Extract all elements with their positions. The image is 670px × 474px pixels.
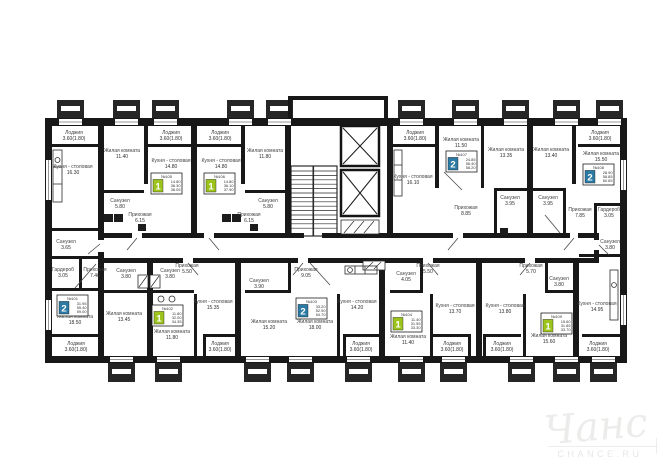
room-label: Лоджия3.60(1.80) — [404, 130, 427, 142]
room-area: 3.60(1.80) — [160, 136, 183, 142]
room-label: Лоджия3.60(1.80) — [589, 130, 612, 142]
room-area: 13.35 — [500, 153, 513, 159]
room-area: 4.05 — [401, 277, 411, 283]
room-label: Жилая комната15.60 — [531, 333, 567, 345]
svg-text:2: 2 — [587, 173, 592, 184]
room-area: 15.35 — [207, 305, 220, 311]
room-label: Жилая комната13.35 — [488, 147, 524, 159]
room-area: 3.60(1.80) — [209, 136, 232, 142]
room-area: 16.10 — [407, 180, 420, 186]
room-label: Кухня - столовая16.30 — [53, 164, 92, 176]
room-label: Жилая комната11.40 — [104, 148, 140, 160]
room-label: Кухня - столовая15.35 — [193, 299, 232, 311]
room-area: 13.40 — [545, 153, 558, 159]
room-area: 15.50 — [595, 157, 608, 163]
room-area: 3.60(1.80) — [404, 136, 427, 142]
apartment-badge[interactable]: №109 1 15.6031.8533.70 — [541, 313, 572, 334]
room-label: Жилая комната11.80 — [247, 148, 283, 160]
room-label: Жилая комната11.40 — [390, 334, 426, 346]
room-area: 11.80 — [166, 335, 178, 341]
apartment-badge[interactable]: №107 2 24.8556.4058.20 — [446, 151, 477, 172]
room-area: 18.00 — [309, 325, 322, 331]
room-area: 6.15 — [244, 218, 254, 224]
room-label: Санузел3.90 — [249, 278, 269, 290]
svg-text:2: 2 — [300, 307, 305, 318]
room-area: 3.05 — [604, 213, 614, 219]
stove-icon — [158, 296, 175, 302]
room-label: Санузел3.95 — [500, 195, 520, 207]
room-area: 3.60(1.80) — [63, 136, 86, 142]
room-label: Гардероб3.05 — [598, 207, 620, 219]
room-label: Жилая комната18.00 — [297, 319, 333, 331]
room-label: Жилая комната15.20 — [251, 319, 287, 331]
room-label: Лоджия3.60(1.80) — [65, 341, 88, 353]
room-area: 3.60(1.80) — [589, 136, 612, 142]
room-area: 14.20 — [351, 305, 364, 311]
room-label: Санузел3.80 — [160, 268, 180, 280]
balcony-stubs-top — [57, 100, 623, 120]
room-area: 5.80 — [115, 204, 125, 210]
room-label: Санузел3.80 — [116, 268, 136, 280]
svg-text:59.00: 59.00 — [77, 309, 88, 314]
walls — [45, 96, 627, 363]
staircase-icon — [291, 166, 337, 236]
room-label: Санузел3.65 — [56, 239, 76, 251]
room-area: 13.45 — [118, 317, 131, 323]
floor-plan-page: Лоджия3.60(1.80) Кухня - столовая16.30 Ж… — [0, 0, 670, 474]
room-area: 3.65 — [61, 245, 71, 251]
room-label: Кухня - столовая13.80 — [485, 303, 524, 315]
room-area: 11.40 — [116, 154, 128, 160]
apartment-badge[interactable]: №106 1 14.8036.1037.90 — [204, 173, 235, 194]
room-area: 16.30 — [67, 170, 80, 176]
svg-text:38.05: 38.05 — [171, 187, 181, 192]
room-area: 3.60(1.80) — [209, 347, 232, 353]
room-area: 13.80 — [499, 309, 512, 315]
room-area: 3.60(1.80) — [65, 347, 88, 353]
room-label: Жилая комната13.40 — [533, 147, 569, 159]
room-label: Лоджия3.60(1.80) — [491, 341, 514, 353]
watermark: Чанс CHANCE.RU — [542, 400, 658, 459]
room-area: 11.80 — [259, 154, 271, 160]
elevator-icon — [341, 126, 379, 166]
room-label: Лоджия3.60(1.80) — [209, 130, 232, 142]
svg-text:60.65: 60.65 — [603, 178, 613, 183]
svg-text:1: 1 — [155, 182, 161, 193]
apartment-badge[interactable]: №102 1 11.8032.0034.35 — [152, 305, 183, 326]
kitchen-counter — [53, 150, 62, 202]
room-label: Лоджия3.60(1.80) — [441, 341, 464, 353]
svg-text:1: 1 — [208, 182, 214, 193]
room-area: 7.40 — [90, 273, 100, 279]
room-label: Лоджия3.60(1.80) — [587, 341, 610, 353]
room-area: 3.80 — [554, 282, 564, 288]
kitchen-counter — [394, 150, 402, 196]
room-label: Прихожая8.85 — [454, 205, 477, 217]
apartment-badge[interactable]: №103 2 33.2052.9054.70 — [296, 298, 327, 319]
apartment-badge[interactable]: №104 1 11.4031.5533.30 — [391, 311, 422, 332]
room-area: 3.90 — [254, 284, 264, 290]
room-area: 5.80 — [263, 204, 273, 210]
room-area: 3.95 — [505, 201, 515, 207]
room-area: 15.60 — [543, 339, 556, 345]
room-area: 15.20 — [263, 325, 276, 331]
elevator-icon — [341, 170, 379, 216]
apartment-badge[interactable]: №101 2 31.9555.4059.00 — [57, 295, 88, 316]
floor-plan: Лоджия3.60(1.80) Кухня - столовая16.30 Ж… — [0, 0, 670, 474]
room-area: 14.95 — [591, 307, 604, 313]
room-label: Лоджия3.60(1.80) — [209, 341, 232, 353]
room-label: Прихожая7.85 — [568, 207, 591, 219]
room-label: Гардероб3.05 — [52, 267, 74, 279]
room-label: Прихожая9.05 — [294, 267, 317, 279]
room-label: Лоджия3.60(1.80) — [160, 130, 183, 142]
room-area: 11.50 — [455, 143, 467, 149]
room-label: Санузел5.80 — [110, 198, 130, 210]
room-label: Кухня - столовая13.70 — [435, 303, 474, 315]
room-area: 5.70 — [526, 269, 536, 275]
svg-text:1: 1 — [395, 320, 401, 331]
room-label: Жилая комната13.45 — [106, 311, 142, 323]
room-area: 6.15 — [135, 218, 145, 224]
svg-text:37.90: 37.90 — [224, 187, 235, 192]
room-area: 3.80 — [605, 245, 615, 251]
room-area: 13.70 — [449, 309, 462, 315]
room-label: Лоджия3.60(1.80) — [350, 341, 373, 353]
svg-text:34.35: 34.35 — [172, 319, 182, 324]
room-label: Кухня - столовая14.80 — [151, 158, 190, 170]
room-area: 9.05 — [301, 273, 311, 279]
apartment-badge[interactable]: №105 1 14.8036.3038.05 — [151, 173, 182, 194]
svg-text:2: 2 — [61, 304, 66, 315]
room-label: Санузел3.80 — [549, 276, 569, 288]
svg-text:1: 1 — [545, 322, 551, 333]
room-label: Санузел3.95 — [538, 195, 558, 207]
room-label: Санузел5.80 — [258, 198, 278, 210]
room-area: 3.60(1.80) — [491, 347, 514, 353]
room-area: 3.05 — [58, 273, 68, 279]
room-area: 8.85 — [461, 211, 471, 217]
room-label: Кухня - столовая14.80 — [201, 158, 240, 170]
room-area: 3.60(1.80) — [587, 347, 610, 353]
room-label: Лоджия3.60(1.80) — [63, 130, 86, 142]
kitchen-counter — [610, 270, 618, 320]
svg-text:58.20: 58.20 — [466, 165, 477, 170]
room-area: 14.80 — [215, 164, 228, 170]
room-area: 3.80 — [165, 274, 175, 280]
room-label: Санузел4.05 — [396, 271, 416, 283]
room-labels: Лоджия3.60(1.80) Кухня - столовая16.30 Ж… — [52, 130, 620, 353]
svg-text:2: 2 — [450, 160, 455, 171]
room-area: 3.80 — [121, 274, 131, 280]
room-area: 3.60(1.80) — [350, 347, 373, 353]
windows — [46, 119, 626, 362]
apartment-badge[interactable]: №108 2 28.9058.8560.65 — [583, 164, 614, 185]
room-label: Жилая комната11.80 — [154, 329, 190, 341]
building-core — [291, 126, 379, 236]
room-label: Жилая комната15.50 — [583, 151, 619, 163]
room-area: 3.60(1.80) — [441, 347, 464, 353]
room-label: Прихожая6.15 — [128, 212, 151, 224]
door-openings — [98, 240, 599, 252]
svg-text:54.70: 54.70 — [316, 312, 327, 317]
room-area: 5.50 — [182, 269, 192, 275]
room-label: Жилая комната11.50 — [443, 137, 479, 149]
room-label: Кухня - столовая14.20 — [337, 299, 376, 311]
room-area: 7.85 — [575, 213, 585, 219]
svg-text:33.70: 33.70 — [561, 327, 572, 332]
room-area: 11.40 — [402, 340, 414, 346]
room-area: 3.95 — [543, 201, 553, 207]
room-label: Прихожая5.70 — [519, 263, 542, 275]
room-area: 14.80 — [165, 164, 178, 170]
watermark-caption: CHANCE.RU — [557, 449, 642, 459]
room-area: 5.50 — [423, 269, 433, 275]
vent-shaft — [341, 220, 379, 234]
room-label: Кухня - столовая14.95 — [577, 301, 616, 313]
svg-text:1: 1 — [156, 314, 162, 325]
svg-text:33.30: 33.30 — [411, 325, 422, 330]
balcony-stubs-bottom — [108, 363, 617, 382]
room-area: 18.50 — [69, 320, 82, 326]
